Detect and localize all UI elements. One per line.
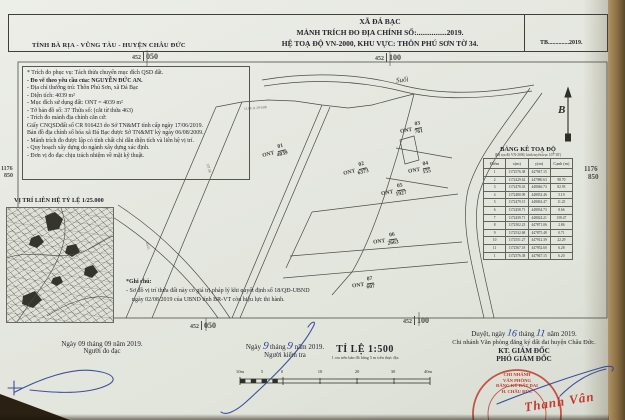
approver-signature [497, 366, 613, 404]
document-photo: XÃ ĐÁ BẠC MẢNH TRÍCH ĐO ĐỊA CHÍNH SỐ:...… [0, 0, 625, 420]
surveyor-signature [8, 381, 22, 395]
surveyor-signature [15, 370, 113, 392]
photo-bottom-shadow [0, 414, 609, 420]
checker-signature [221, 322, 314, 413]
signatures-ink [0, 0, 625, 420]
